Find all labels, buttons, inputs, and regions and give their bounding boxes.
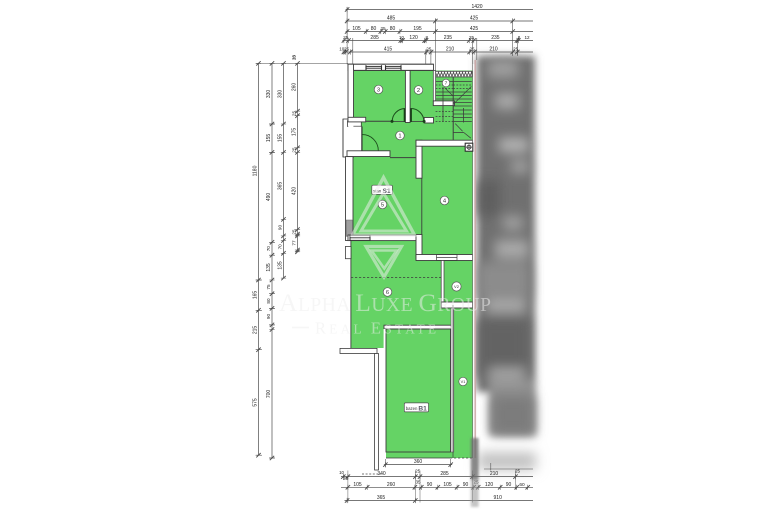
svg-text:70: 70	[278, 244, 283, 250]
svg-text:80: 80	[371, 26, 377, 32]
svg-text:235: 235	[444, 35, 453, 41]
svg-text:135: 135	[278, 261, 284, 270]
svg-text:90: 90	[266, 314, 271, 320]
svg-text:340: 340	[377, 471, 386, 477]
svg-text:90: 90	[506, 482, 512, 488]
svg-text:700: 700	[266, 390, 272, 399]
svg-text:330: 330	[266, 90, 272, 99]
svg-text:415: 415	[384, 46, 393, 52]
svg-text:25: 25	[380, 26, 386, 31]
svg-text:105: 105	[443, 482, 452, 488]
svg-text:425: 425	[470, 26, 479, 32]
svg-text:25: 25	[292, 229, 297, 235]
svg-text:8: 8	[426, 35, 429, 40]
svg-text:5: 5	[381, 203, 384, 209]
svg-text:3: 3	[377, 88, 380, 94]
svg-text:485: 485	[387, 15, 396, 21]
svg-text:105: 105	[352, 26, 361, 32]
svg-text:10: 10	[292, 55, 297, 60]
svg-text:120: 120	[485, 482, 494, 488]
svg-text:1420: 1420	[471, 4, 482, 10]
svg-text:1180: 1180	[253, 165, 259, 176]
svg-text:25: 25	[292, 111, 297, 117]
svg-text:910: 910	[494, 495, 503, 501]
svg-text:120: 120	[409, 35, 418, 41]
svg-text:2: 2	[417, 88, 420, 94]
svg-text:77: 77	[292, 240, 297, 246]
svg-text:195: 195	[413, 26, 422, 32]
svg-text:165: 165	[253, 291, 259, 300]
svg-text:10: 10	[339, 470, 344, 475]
svg-text:75: 75	[266, 284, 271, 290]
svg-text:25: 25	[469, 35, 475, 40]
svg-text:285: 285	[440, 471, 449, 477]
svg-text:12: 12	[524, 35, 530, 40]
svg-text:90: 90	[278, 225, 283, 231]
svg-text:365: 365	[278, 182, 284, 191]
svg-text:25: 25	[343, 35, 349, 40]
svg-text:260: 260	[387, 482, 396, 488]
svg-text:155: 155	[266, 134, 272, 143]
svg-text:1: 1	[398, 134, 401, 140]
svg-text:360: 360	[414, 459, 423, 465]
svg-text:425: 425	[470, 15, 479, 21]
svg-text:210: 210	[489, 46, 498, 52]
svg-text:575: 575	[253, 398, 259, 407]
svg-text:260: 260	[292, 83, 298, 92]
svg-text:V2: V2	[454, 284, 460, 289]
svg-text:8: 8	[518, 35, 521, 40]
svg-text:420: 420	[292, 187, 298, 196]
svg-text:REAL ESTATE: REAL ESTATE	[315, 319, 436, 338]
svg-text:25: 25	[513, 46, 519, 51]
svg-text:215: 215	[253, 326, 259, 335]
svg-text:80: 80	[390, 26, 396, 32]
svg-text:7: 7	[445, 81, 448, 87]
svg-text:25: 25	[292, 147, 297, 153]
svg-text:bazen: bazen	[406, 406, 418, 411]
svg-text:365: 365	[377, 495, 386, 501]
svg-text:235: 235	[491, 35, 500, 41]
svg-text:490: 490	[266, 193, 272, 202]
svg-text:210: 210	[490, 471, 499, 477]
svg-text:V1: V1	[461, 380, 466, 384]
svg-text:60: 60	[519, 482, 525, 488]
svg-text:10: 10	[399, 35, 405, 40]
svg-text:90: 90	[427, 482, 433, 488]
svg-text:80: 80	[266, 298, 271, 304]
svg-text:70: 70	[266, 246, 271, 252]
svg-text:155: 155	[278, 134, 284, 143]
svg-text:330: 330	[278, 90, 284, 99]
svg-text:210: 210	[446, 46, 455, 52]
svg-text:25: 25	[469, 46, 475, 51]
svg-text:105: 105	[353, 482, 362, 488]
svg-text:B1: B1	[418, 405, 427, 412]
svg-text:285: 285	[370, 35, 379, 41]
svg-text:25: 25	[515, 469, 521, 474]
svg-text:25: 25	[344, 46, 350, 51]
svg-text:135: 135	[266, 263, 272, 272]
svg-text:90: 90	[463, 482, 469, 488]
svg-text:175: 175	[292, 128, 298, 137]
